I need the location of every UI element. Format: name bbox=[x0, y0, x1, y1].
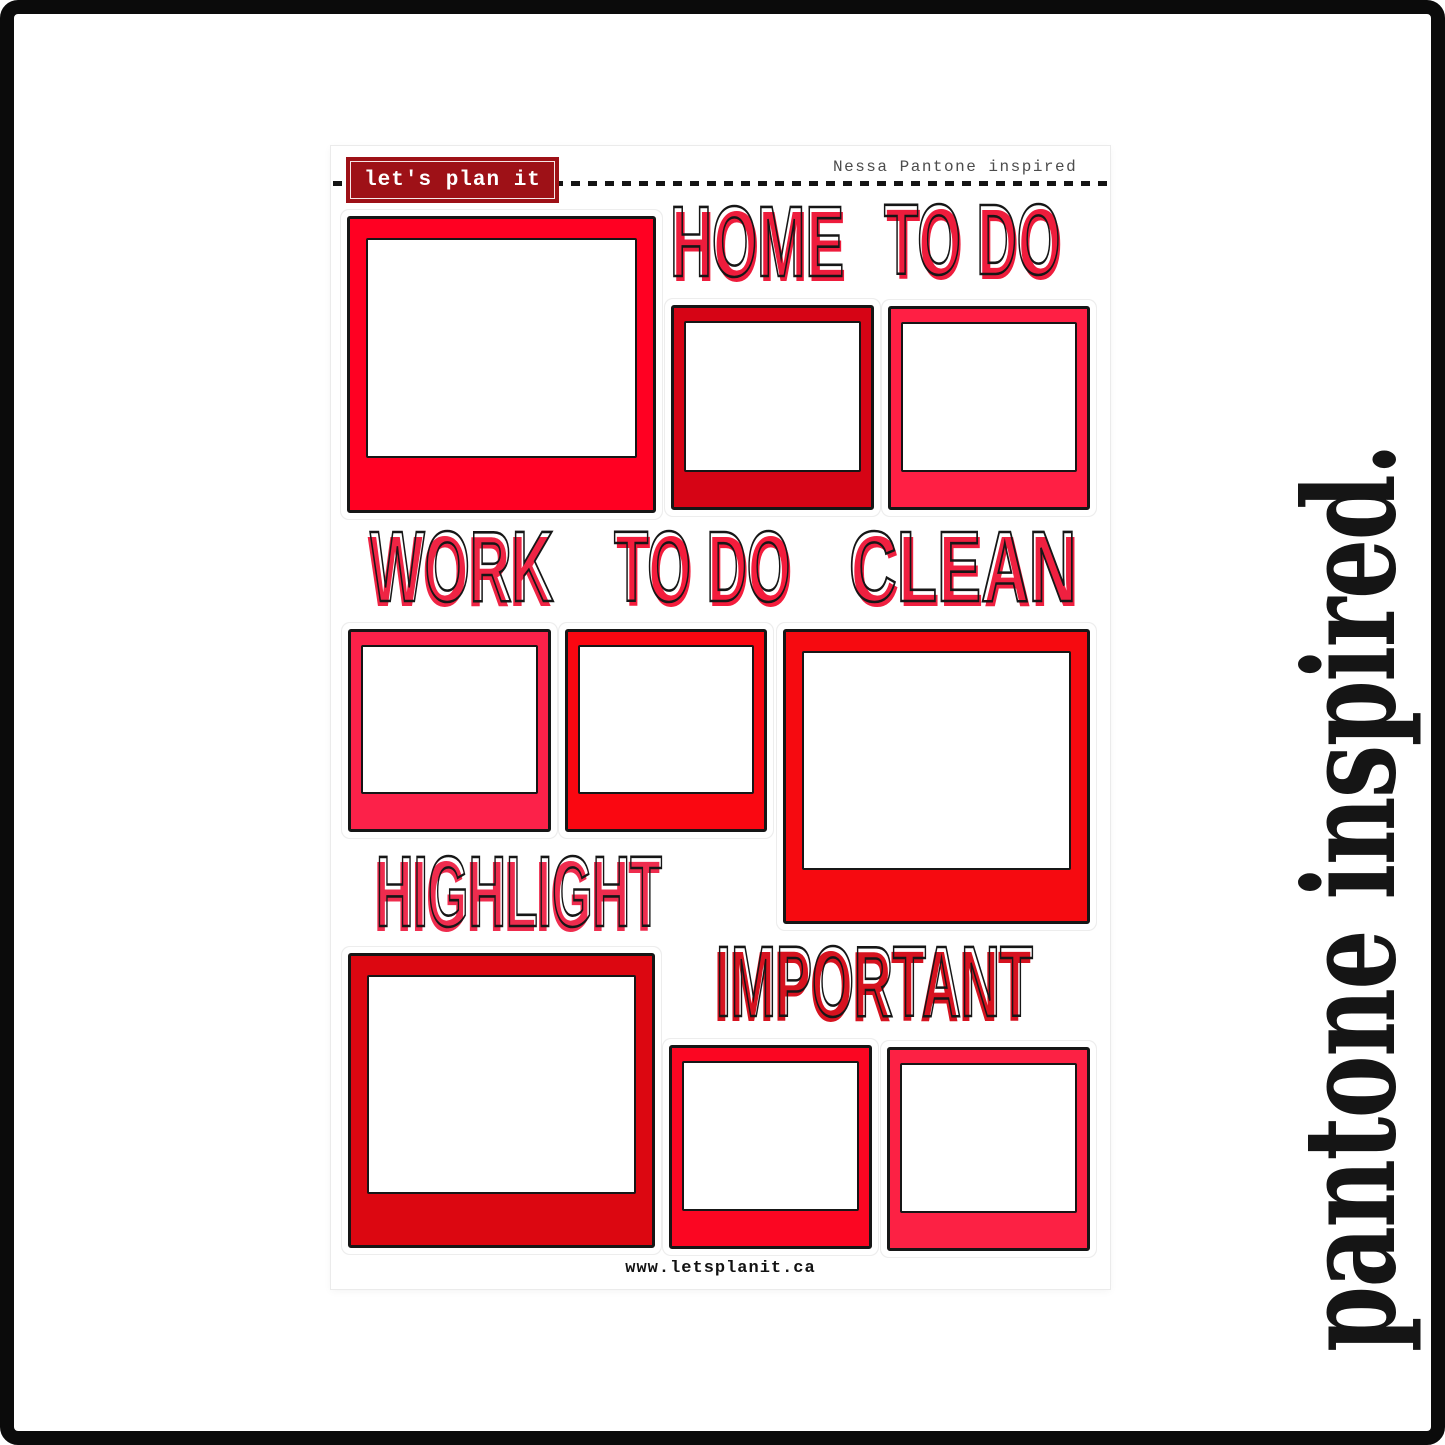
polaroid-frame-work-small-1 bbox=[348, 629, 551, 832]
polaroid-frame-home-large bbox=[347, 216, 656, 513]
heading-outline: HIGHLIGHT bbox=[376, 836, 662, 948]
polaroid-frame-highlight-large bbox=[348, 953, 655, 1248]
polaroid-frame-important-small-1 bbox=[669, 1045, 872, 1249]
collection-label: Nessa Pantone inspired bbox=[833, 158, 1093, 176]
heading-sticker-clean: CLEAN CLEAN CLEAN bbox=[849, 517, 1076, 617]
heading-outline: HOME bbox=[670, 186, 844, 298]
heading-outline: TO DO bbox=[884, 184, 1060, 296]
polaroid-photo-area bbox=[682, 1061, 859, 1211]
logo-label: let's plan it bbox=[350, 161, 555, 199]
polaroid-frame-important-small-2 bbox=[887, 1047, 1090, 1251]
heading-sticker-important: IMPORTANT IMPORTANT IMPORTANT bbox=[716, 932, 1033, 1032]
heading-sticker-home: HOME HOME HOME bbox=[670, 192, 844, 292]
polaroid-frame-home-small-2 bbox=[888, 306, 1090, 510]
polaroid-frame-work-small-2 bbox=[565, 629, 767, 832]
heading-outline: CLEAN bbox=[849, 511, 1076, 623]
polaroid-photo-area bbox=[366, 238, 638, 458]
heading-sticker-work-to-do: TO DO TO DO TO DO bbox=[614, 517, 790, 617]
polaroid-frame-home-small-1 bbox=[671, 305, 874, 510]
side-caption: pantone inspired. bbox=[1276, 444, 1424, 1352]
heading-sticker-home-to-do: TO DO TO DO TO DO bbox=[884, 190, 1060, 290]
website-url: www.letsplanit.ca bbox=[331, 1259, 1110, 1278]
polaroid-photo-area bbox=[367, 975, 637, 1193]
polaroid-photo-area bbox=[361, 645, 538, 794]
lets-plan-it-logo: let's plan it bbox=[346, 157, 559, 203]
heading-outline: TO DO bbox=[614, 511, 790, 623]
heading-outline: WORK bbox=[370, 511, 554, 623]
heading-outline: IMPORTANT bbox=[716, 926, 1033, 1038]
polaroid-photo-area bbox=[802, 651, 1072, 869]
polaroid-photo-area bbox=[684, 321, 861, 471]
heading-sticker-highlight: HIGHLIGHT HIGHLIGHT HIGHLIGHT bbox=[376, 842, 662, 942]
polaroid-photo-area bbox=[578, 645, 754, 794]
polaroid-photo-area bbox=[900, 1063, 1077, 1213]
polaroid-photo-area bbox=[901, 322, 1077, 472]
heading-sticker-work: WORK WORK WORK bbox=[370, 517, 554, 617]
polaroid-frame-clean-large bbox=[783, 629, 1090, 924]
